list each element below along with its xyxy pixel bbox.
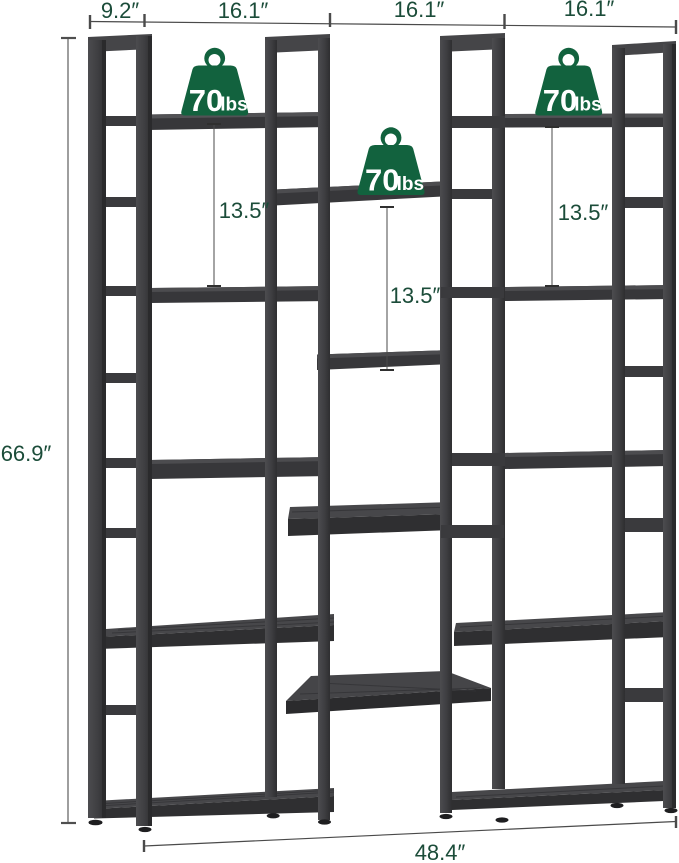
svg-text:lbs: lbs: [220, 95, 247, 116]
svg-text:16.1″: 16.1″: [394, 0, 445, 22]
svg-text:16.1″: 16.1″: [218, 0, 269, 23]
svg-text:70: 70: [365, 163, 399, 198]
svg-text:lbs: lbs: [574, 95, 601, 116]
svg-text:66.9″: 66.9″: [1, 441, 52, 466]
svg-text:70: 70: [189, 83, 223, 118]
svg-text:13.5″: 13.5″: [558, 200, 609, 225]
svg-text:16.1″: 16.1″: [564, 0, 615, 21]
svg-text:13.5″: 13.5″: [219, 198, 270, 223]
svg-text:lbs: lbs: [397, 174, 424, 195]
svg-text:48.4″: 48.4″: [415, 840, 466, 863]
svg-text:9.2″: 9.2″: [101, 0, 140, 23]
svg-text:70: 70: [543, 83, 577, 118]
svg-text:13.5″: 13.5″: [390, 283, 441, 308]
